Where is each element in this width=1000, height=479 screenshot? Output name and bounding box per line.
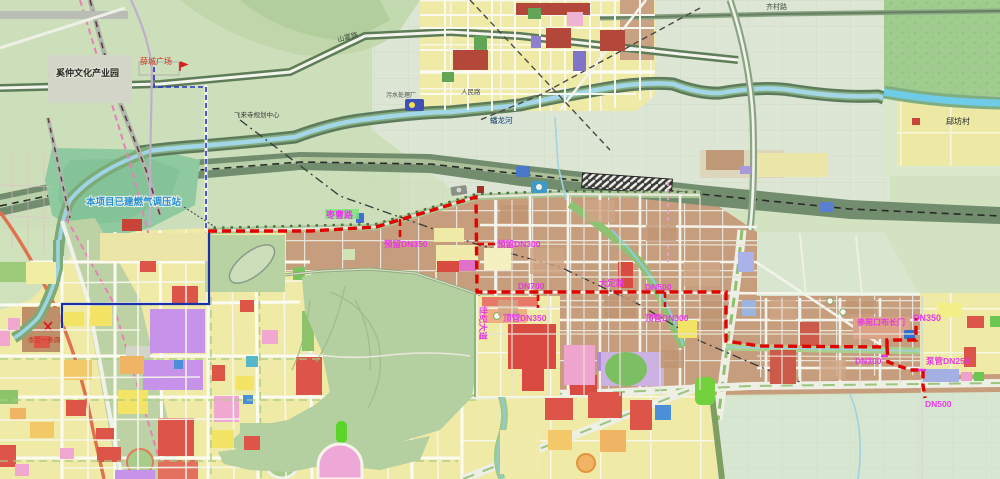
- svg-text:DN500: DN500: [645, 282, 672, 292]
- svg-text:顶管DN300: 顶管DN300: [645, 313, 689, 323]
- svg-text:DN700: DN700: [518, 281, 545, 291]
- svg-text:预留DN350: 预留DN350: [384, 239, 428, 249]
- svg-text:飞来寺规划中心: 飞来寺规划中心: [234, 110, 280, 119]
- svg-text:参苑口布长门: 参苑口布长门: [856, 317, 905, 327]
- svg-text:污水处理厂: 污水处理厂: [386, 91, 416, 99]
- svg-text:黍兰一条路: 黍兰一条路: [28, 335, 61, 344]
- svg-text:郈坊村: 郈坊村: [946, 116, 970, 126]
- svg-text:泵管DN250: 泵管DN250: [926, 356, 970, 366]
- svg-text:枣曹路: 枣曹路: [325, 209, 354, 220]
- svg-text:DN350: DN350: [913, 313, 941, 323]
- svg-text:顶管DN350: 顶管DN350: [503, 313, 547, 323]
- svg-text:本项目已建燃气调压站: 本项目已建燃气调压站: [86, 196, 182, 208]
- svg-text:齐村路: 齐村路: [766, 2, 787, 11]
- svg-text:世纪大道: 世纪大道: [478, 306, 488, 341]
- svg-text:DN300: DN300: [855, 356, 882, 366]
- svg-text:人民路: 人民路: [461, 87, 481, 96]
- svg-text:奚仲文化产业园: 奚仲文化产业园: [56, 67, 119, 78]
- svg-text:大定路: 大定路: [599, 278, 625, 288]
- svg-text:预留DN300: 预留DN300: [497, 239, 541, 249]
- svg-text:蟠龙河: 蟠龙河: [490, 115, 513, 125]
- svg-text:DN500: DN500: [925, 399, 952, 409]
- svg-text:薛城广场: 薛城广场: [140, 56, 172, 66]
